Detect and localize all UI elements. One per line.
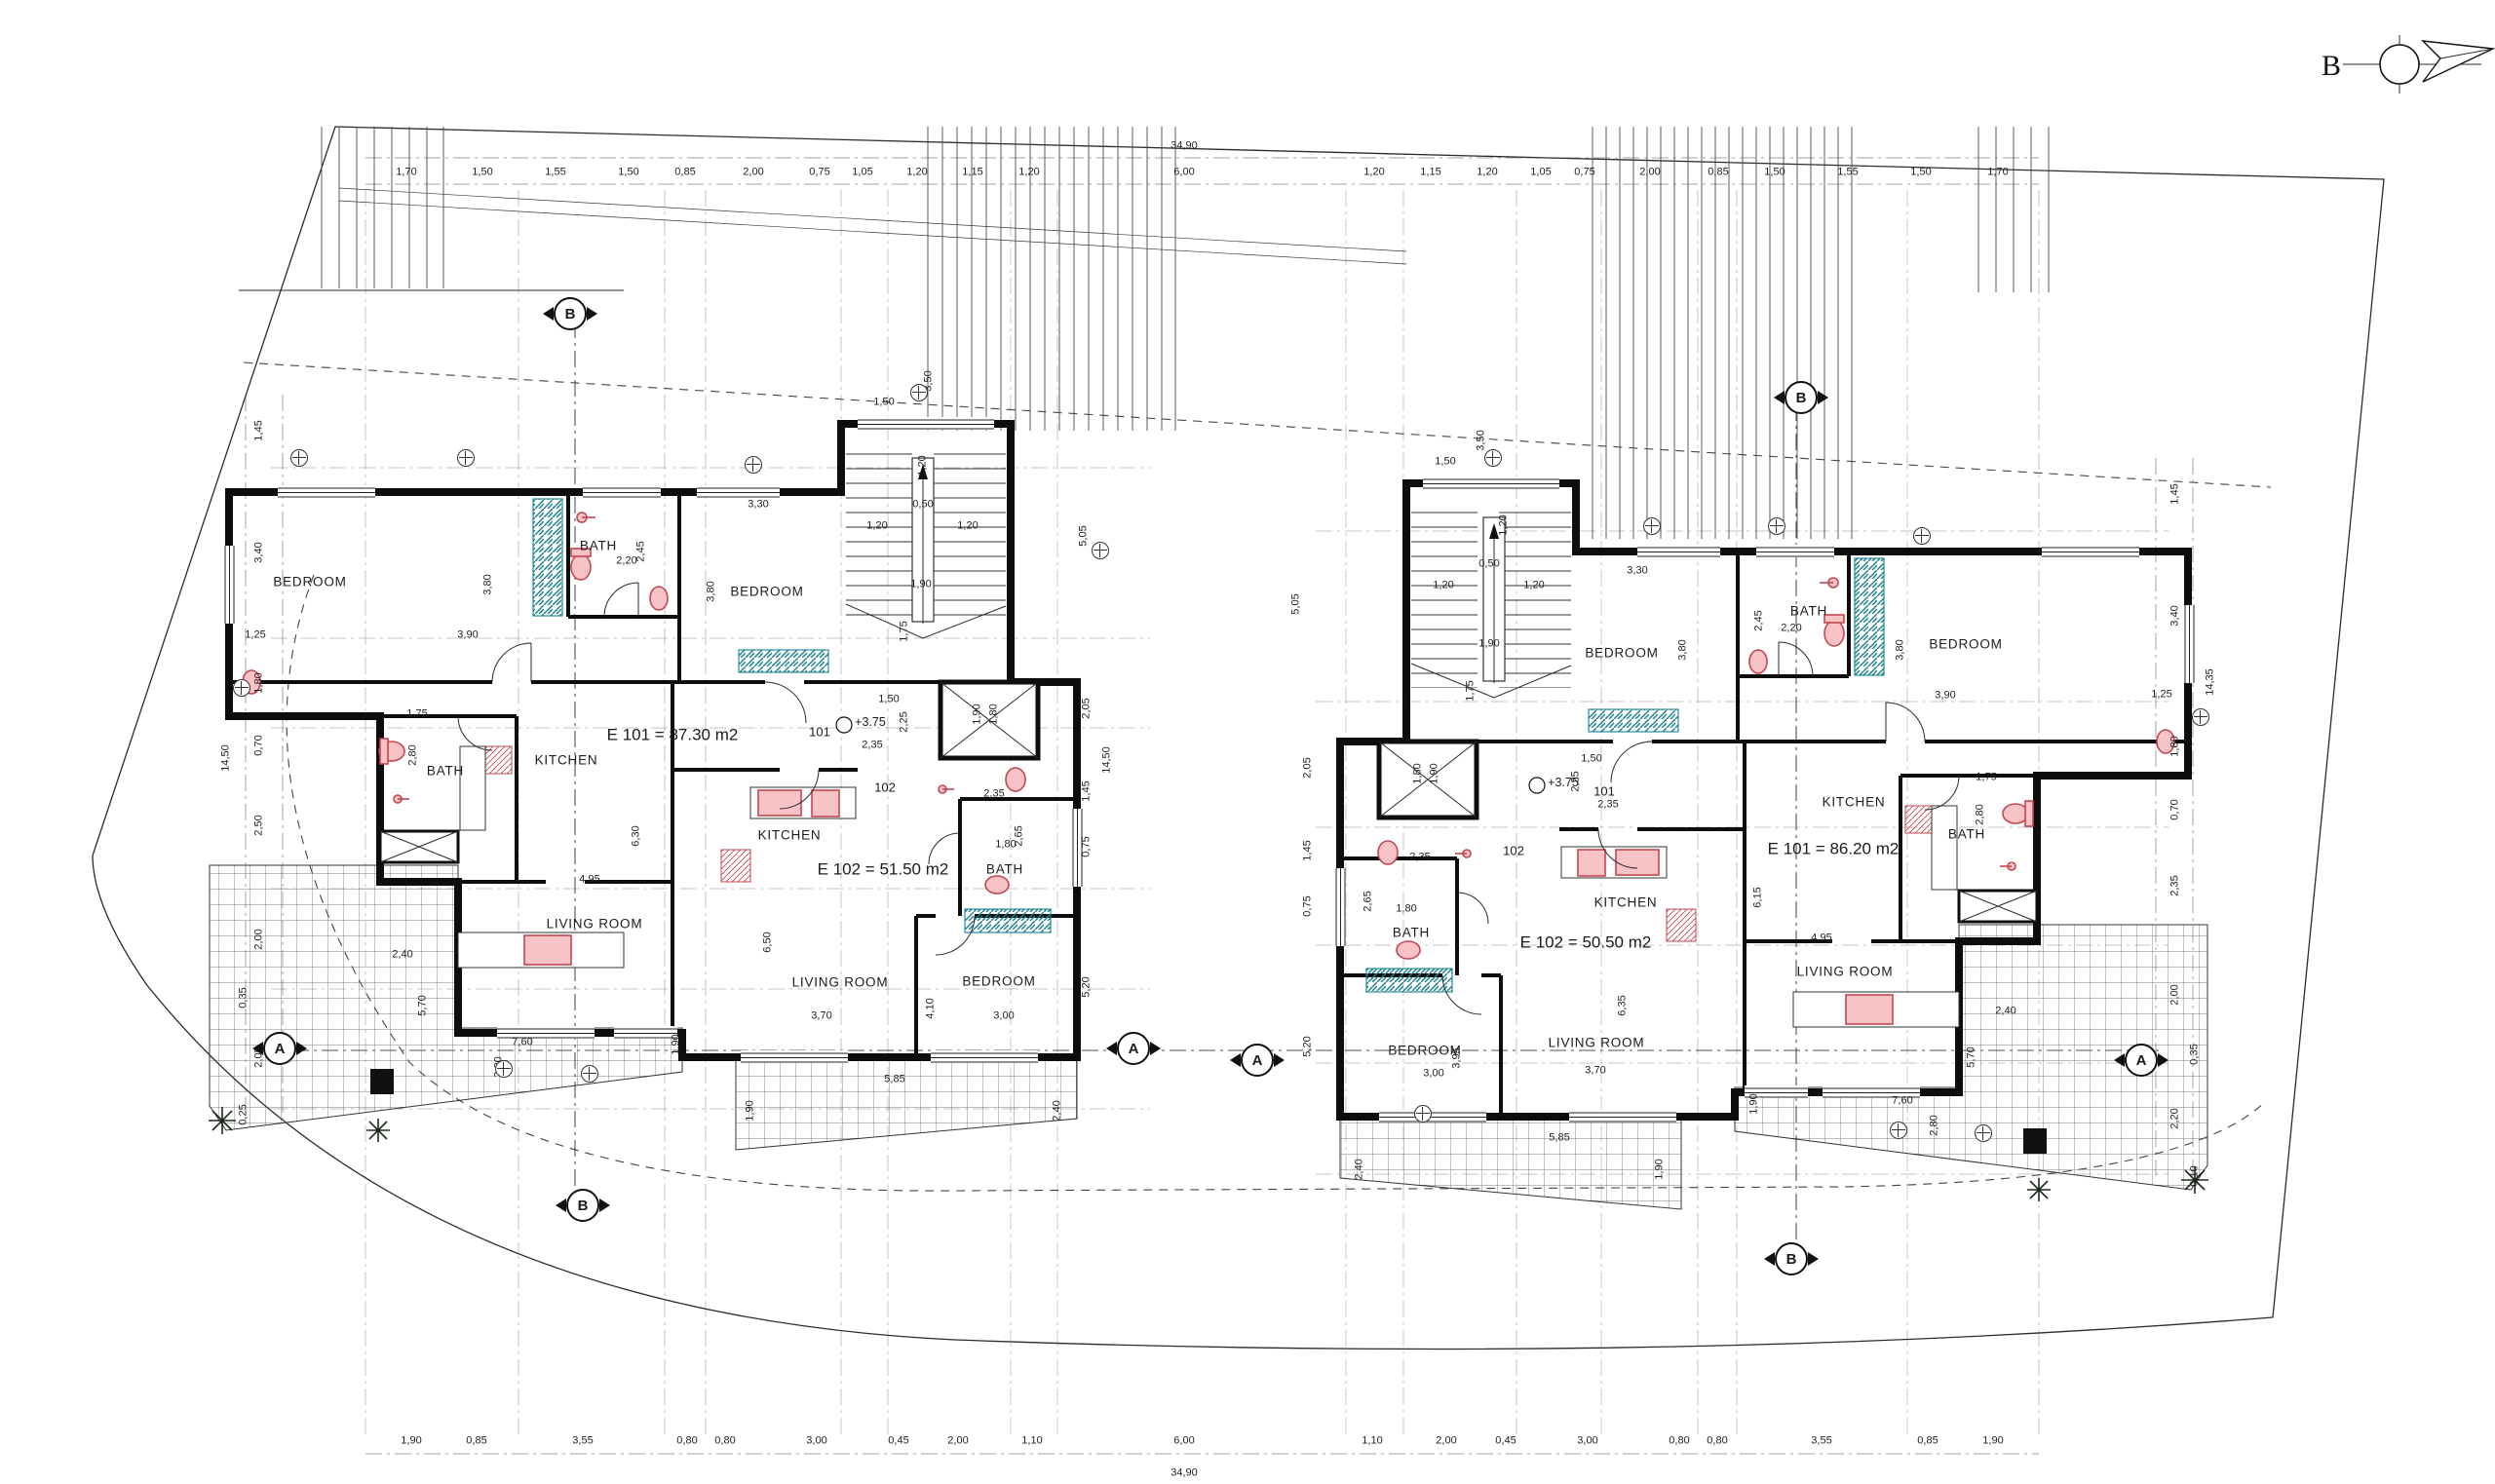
level-label: +3.75	[1548, 777, 1579, 789]
driveway-stripes	[322, 127, 2049, 539]
dimension-label: 6,50	[763, 932, 774, 952]
dimension-label: 6,00	[1173, 168, 1194, 178]
dimension-label: 3,90	[457, 630, 478, 641]
dimension-label: 2,00	[1436, 1436, 1456, 1447]
room-label: LIVING ROOM	[1797, 965, 1894, 978]
room-label: KITCHEN	[1594, 895, 1658, 909]
dimension-label: 7,60	[1892, 1096, 1912, 1107]
dimension-label: 0,45	[1495, 1436, 1516, 1447]
level-label: +3.75	[855, 716, 886, 729]
dimension-label: 4,95	[1811, 933, 1831, 944]
dimension-label: 7,60	[512, 1038, 532, 1048]
dimension-label: 1,90	[1749, 1093, 1760, 1114]
dimension-label: 1,20	[1499, 514, 1510, 535]
dimension-label: 0,80	[676, 1436, 697, 1447]
dimension-label: 1,80	[989, 704, 1000, 724]
dimension-label: 0,50	[1478, 559, 1499, 570]
unit-area-label: E 101 = 86.20 m2	[1768, 841, 1900, 857]
dimension-label: 3,70	[1585, 1066, 1605, 1077]
section-marker-a: A	[1241, 1044, 1274, 1077]
dimension-label: 1,55	[545, 168, 565, 178]
dimension-label: 1,20	[957, 521, 978, 532]
dimension-label: 2,20	[1781, 624, 1801, 634]
dimension-label: 0,35	[2190, 1044, 2201, 1064]
dimension-label: 3,40	[254, 542, 265, 562]
terrace-column	[2023, 1128, 2047, 1154]
dimension-label: 3,80	[483, 574, 494, 594]
room-label: KITCHEN	[1823, 795, 1886, 809]
section-marker-b: B	[1785, 381, 1818, 414]
dimension-label: 2,50	[254, 815, 265, 835]
dimension-label: 1,80	[995, 840, 1016, 851]
window-tag-icon	[581, 1065, 598, 1083]
room-label: BATH	[1393, 926, 1430, 939]
dimension-label: 2,35	[983, 789, 1004, 800]
room-label: BATH	[986, 862, 1023, 876]
window-tag-icon	[1484, 449, 1502, 467]
unit-area-label: E 102 = 51.50 m2	[818, 861, 949, 878]
dimension-label: 2,25	[900, 711, 910, 732]
dimension-label: 6,00	[1173, 1436, 1194, 1447]
dimension-label: 2,40	[1053, 1100, 1063, 1121]
dimension-label: 1,15	[962, 168, 982, 178]
dimension-label: 0,70	[2170, 799, 2181, 819]
section-marker-a: A	[263, 1032, 296, 1065]
room-label: BATH	[1790, 604, 1827, 618]
right-light-well	[1959, 891, 2037, 922]
dimension-label: 1,50	[618, 168, 638, 178]
dimension-label: 5,20	[1303, 1036, 1314, 1056]
dimension-label: 2,00	[2170, 984, 2181, 1005]
dimension-label: 0,70	[254, 735, 265, 755]
dimension-label: 0,85	[466, 1436, 486, 1447]
section-marker-b: B	[554, 297, 587, 330]
dimension-label: 2,80	[1976, 804, 1986, 824]
left-light-well	[380, 831, 458, 862]
unit-area-label: E 102 = 50.50 m2	[1520, 934, 1652, 951]
terrace-left-large	[210, 865, 682, 1130]
dimension-label: 2,35	[1409, 853, 1430, 863]
dimension-label: 5,70	[1967, 1046, 1977, 1067]
dimension-label: 1,45	[2170, 483, 2181, 504]
dimension-label: 3,90	[1935, 691, 1955, 702]
apartment-number-label: 102	[874, 781, 896, 794]
dimension-label: 1,90	[1982, 1436, 2003, 1447]
window-tag-icon	[1092, 542, 1109, 559]
dimension-label: 1,50	[1910, 168, 1931, 178]
dimension-label: 1,15	[1420, 168, 1440, 178]
dimension-label: 5,85	[884, 1075, 904, 1085]
room-label: BATH	[1948, 827, 1985, 841]
dimension-label: 3,70	[811, 1011, 831, 1022]
window-tag-icon	[290, 449, 308, 467]
dimension-label: 1,20	[866, 521, 887, 532]
dimension-label: 1,90	[1655, 1159, 1666, 1179]
dimension-label: 0,85	[1917, 1436, 1938, 1447]
unit-area-label: E 101 = 87.30 m2	[607, 727, 739, 743]
room-label: KITCHEN	[758, 828, 822, 842]
dimension-label: 1,50	[472, 168, 492, 178]
dimension-label: 3,00	[1577, 1436, 1597, 1447]
floor-plan-drawing	[0, 0, 2495, 1484]
dimension-label: 0,35	[239, 987, 249, 1008]
section-marker-a: A	[1117, 1032, 1150, 1065]
dimension-label: 1,70	[396, 168, 416, 178]
dimension-label: 0,25	[239, 1104, 249, 1124]
section-marker-b: B	[566, 1189, 599, 1222]
dimension-label: 2,20	[616, 556, 636, 567]
room-label: LIVING ROOM	[792, 975, 889, 989]
apartment-number-label: 102	[1503, 845, 1524, 857]
dimension-label: 6,35	[1618, 995, 1629, 1015]
dimension-label: 1,10	[1021, 1436, 1042, 1447]
dimension-label: 1,80	[1396, 904, 1416, 915]
dimension-label: 1,80	[254, 672, 265, 693]
dimension-label: 5,85	[1549, 1133, 1569, 1144]
dimension-label: 2,80	[1930, 1115, 1940, 1135]
dimension-label: 2,00	[1639, 168, 1660, 178]
dimension-label: 1,50	[1764, 168, 1785, 178]
terrace-left-small	[736, 1057, 1077, 1150]
dimension-label: 14,35	[2206, 668, 2216, 696]
dimension-label: 1,90	[910, 580, 931, 590]
window-tag-icon	[1643, 517, 1661, 535]
terrace-column	[370, 1069, 394, 1094]
dimension-label: 0,50	[912, 500, 933, 511]
room-label: BEDROOM	[1388, 1044, 1461, 1057]
dimension-label: 0,75	[1082, 836, 1093, 856]
dimension-label: 0,85	[674, 168, 695, 178]
dimension-label: 2,35	[1597, 800, 1618, 811]
dimension-label: 3,30	[1627, 566, 1647, 577]
dimension-label: 2,40	[1355, 1159, 1365, 1179]
dimension-label: 2,00	[947, 1436, 968, 1447]
dimension-label: 2,05	[1082, 698, 1093, 718]
dimension-label: 1,90	[1478, 639, 1499, 650]
dimension-label: 4,95	[579, 875, 599, 886]
room-label: BEDROOM	[1929, 637, 2002, 651]
dimension-label: 3,00	[806, 1436, 826, 1447]
dimension-label: 1,75	[406, 709, 427, 720]
room-label: BATH	[427, 764, 464, 778]
room-label: BATH	[580, 539, 617, 552]
apartment-number-label: 101	[809, 726, 830, 739]
dimension-label: 3,80	[707, 581, 717, 601]
dimension-label: 1,20	[1523, 581, 1544, 591]
dimension-label: 2,00	[254, 929, 265, 949]
room-label: LIVING ROOM	[547, 917, 643, 931]
dimension-label: 2,05	[1303, 757, 1314, 778]
dimension-label: 1,05	[852, 168, 872, 178]
dimension-label: 1,20	[918, 455, 929, 476]
dimension-label: 3,55	[572, 1436, 593, 1447]
axis-gridlines	[271, 190, 2169, 1437]
apartment-number-label: 101	[1593, 785, 1615, 798]
dimension-label: 0,80	[1669, 1436, 1689, 1447]
room-label: BEDROOM	[1585, 646, 1658, 660]
dimension-label: 1,80	[1413, 763, 1424, 783]
room-label: KITCHEN	[535, 753, 598, 767]
dimension-label: 6,15	[1753, 887, 1764, 907]
dimension-label: 14,50	[221, 744, 232, 772]
dimension-label: 1,50	[1435, 457, 1455, 468]
dimension-label: 0,10	[2190, 1165, 2201, 1186]
window-tag-icon	[910, 384, 928, 401]
north-label: B	[2322, 52, 2341, 81]
dimension-label: 1,90	[672, 1034, 682, 1054]
room-label: BEDROOM	[730, 585, 803, 598]
floor-plan-sheet: const data = JSON.parse(document.getElem…	[0, 0, 2495, 1484]
dimension-label: 5,70	[418, 995, 429, 1015]
window-tag-icon	[233, 679, 250, 697]
dimension-label: 1,20	[1363, 168, 1384, 178]
dimension-label: 1,25	[245, 630, 265, 641]
dimension-label: 5,05	[1079, 525, 1090, 546]
dimension-label: 1,90	[973, 704, 983, 724]
dimension-label: 4,10	[926, 998, 937, 1018]
dimension-label: 0,75	[1574, 168, 1594, 178]
dimension-label: 1,90	[746, 1100, 756, 1121]
dimension-label: 5,20	[1082, 976, 1093, 997]
dimension-label: 0,75	[809, 168, 829, 178]
dimension-label: 0,80	[714, 1436, 735, 1447]
dimension-label: 1,20	[906, 168, 927, 178]
window-tag-icon	[1414, 1105, 1432, 1123]
dimension-label: 2,40	[392, 950, 412, 961]
dimension-label: 2,45	[636, 541, 647, 561]
section-marker-b: B	[1775, 1242, 1808, 1275]
room-label: LIVING ROOM	[1549, 1036, 1645, 1049]
dimension-label: 1,25	[2151, 690, 2171, 701]
dimension-label: 2,00	[743, 168, 763, 178]
dimension-label: 1,90	[1430, 763, 1440, 783]
window-tag-icon	[1913, 527, 1931, 545]
dimension-label: 1,20	[1477, 168, 1497, 178]
dimension-label: 1,90	[401, 1436, 421, 1447]
dimension-label: 3,30	[748, 500, 768, 511]
dimension-label: 1,75	[900, 621, 910, 641]
dimension-label: 1,75	[1466, 680, 1477, 701]
dimension-label: 5,05	[1291, 593, 1302, 614]
dimension-label: 2,40	[1995, 1007, 2015, 1017]
dimension-label: 1,20	[1433, 581, 1453, 591]
window-tag-icon	[745, 456, 762, 474]
dimension-label: 1,50	[873, 398, 894, 408]
dimension-label: 34,90	[1171, 1468, 1198, 1479]
dimension-label: 3,80	[1896, 639, 1906, 660]
dimension-label: 2,35	[2170, 875, 2181, 895]
dimension-label: 2,20	[2170, 1108, 2181, 1128]
dimension-label: 1,45	[1082, 780, 1093, 801]
dimension-label: 1,05	[1530, 168, 1551, 178]
terrace-right-small	[1340, 1117, 1681, 1209]
section-marker-a: A	[2125, 1044, 2158, 1077]
dimension-label: 0,80	[1707, 1436, 1727, 1447]
dimension-label: 0,75	[1303, 895, 1314, 916]
dimension-label: 3,55	[1811, 1436, 1831, 1447]
dimension-label: 2,35	[862, 741, 882, 751]
dimension-label: 1,80	[2170, 736, 2181, 756]
dimension-label: 3,50	[1477, 430, 1487, 450]
right-staircase	[1411, 503, 1571, 698]
dimension-label: 3,40	[2170, 605, 2181, 626]
window-tag-icon	[1768, 517, 1785, 535]
room-label: BEDROOM	[273, 575, 346, 589]
dimension-label: 1,50	[878, 695, 899, 705]
window-tag-icon	[1975, 1124, 1992, 1142]
dimension-label: 0,85	[1708, 168, 1728, 178]
dimension-label: 1,55	[1837, 168, 1858, 178]
dimension-label: 1,75	[1976, 773, 1996, 783]
window-tag-icon	[495, 1060, 513, 1078]
dimension-label: 1,45	[254, 420, 265, 440]
dimension-label: 1,50	[1581, 754, 1601, 765]
window-tag-icon	[2192, 708, 2209, 726]
dimension-label: 2,80	[408, 744, 419, 765]
window-tag-icon	[1890, 1122, 1907, 1139]
window-tag-icon	[457, 449, 475, 467]
dimension-label: 1,20	[1018, 168, 1039, 178]
dimension-label: 2,45	[1754, 610, 1765, 630]
dimension-label: 6,30	[632, 825, 642, 846]
dimension-label: 2,65	[1363, 891, 1374, 911]
dimension-label: 1,10	[1362, 1436, 1382, 1447]
dimension-label: 3,00	[1423, 1069, 1443, 1080]
dimension-label: 14,50	[1102, 746, 1113, 774]
dimension-label: 34,90	[1171, 141, 1198, 152]
room-label: BEDROOM	[962, 974, 1035, 988]
dimension-label: 3,80	[1678, 639, 1689, 660]
dimension-label: 3,00	[993, 1011, 1014, 1022]
dimension-label: 1,45	[1303, 840, 1314, 860]
dimension-label: 1,70	[1987, 168, 2008, 178]
north-arrow-icon	[2343, 35, 2493, 94]
dimension-label: 0,45	[888, 1436, 908, 1447]
